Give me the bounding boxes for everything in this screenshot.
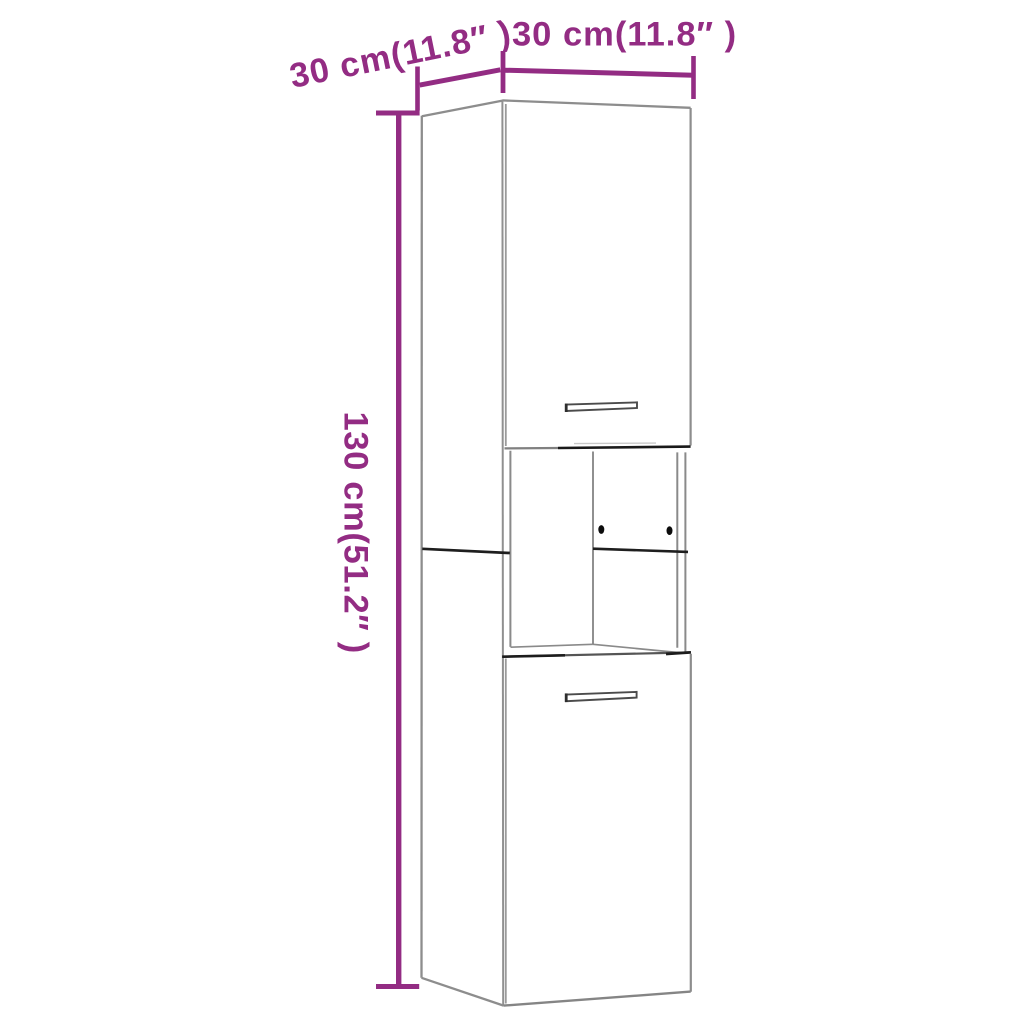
svg-text:130 cm(51.2″ ): 130 cm(51.2″ ) bbox=[337, 412, 375, 654]
svg-text:30 cm(11.8″ ): 30 cm(11.8″ ) bbox=[512, 16, 737, 54]
